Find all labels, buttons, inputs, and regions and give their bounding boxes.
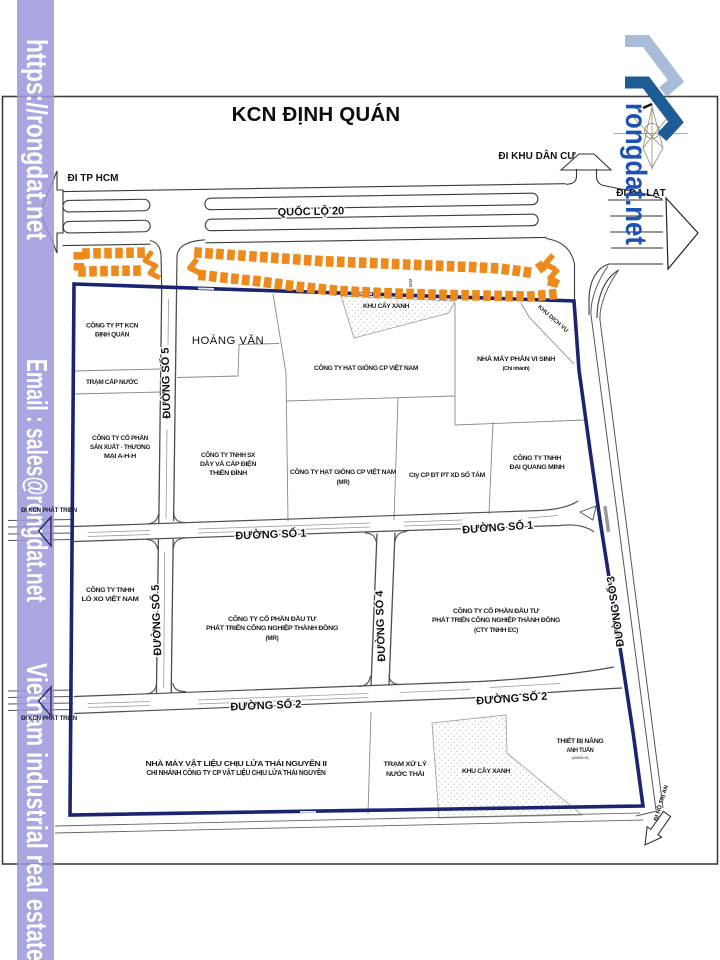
svg-text:QUỐC LỘ 20: QUỐC LỘ 20: [277, 203, 344, 218]
svg-text:LÒ XO VIỆT NAM: LÒ XO VIỆT NAM: [82, 594, 139, 603]
svg-text:CÔNG TY TNHH: CÔNG TY TNHH: [513, 453, 562, 462]
svg-text:(43.992 m²): (43.992 m²): [572, 756, 589, 760]
svg-text:(Chi nhánh): (Chi nhánh): [503, 366, 530, 372]
svg-text:NHÀ MÁY PHÂN VI SINH: NHÀ MÁY PHÂN VI SINH: [477, 354, 556, 363]
svg-text:(CTY TNHH EC): (CTY TNHH EC): [474, 627, 518, 634]
svg-text:ĐI KCN PHÁT TRIỂN: ĐI KCN PHÁT TRIỂN: [21, 507, 77, 514]
svg-text:KHU CÂY XANH: KHU CÂY XANH: [363, 303, 409, 310]
svg-text:ĐI TP HCM: ĐI TP HCM: [68, 173, 119, 184]
svg-text:(MR): (MR): [266, 635, 279, 642]
svg-text:rongdat.net: rongdat.net: [619, 103, 652, 245]
svg-text:DÂY VÀ CÁP ĐIỆN: DÂY VÀ CÁP ĐIỆN: [200, 459, 257, 468]
svg-text:CÔNG TY TNHH: CÔNG TY TNHH: [86, 585, 135, 594]
svg-text:NƯỚC THẢI: NƯỚC THẢI: [386, 769, 425, 778]
svg-text:NHÀ MÁY VẬT LIỆU CHỊU LỬA THÁI: NHÀ MÁY VẬT LIỆU CHỊU LỬA THÁI NGUYÊN II: [146, 759, 327, 768]
svg-text:THIÊN ĐÌNH: THIÊN ĐÌNH: [209, 468, 248, 477]
svg-text:TRẠM XỬ LÝ: TRẠM XỬ LÝ: [384, 759, 428, 768]
svg-text:KCN ĐỊNH QUÁN: KCN ĐỊNH QUÁN: [232, 103, 401, 126]
svg-text:CÔNG TY PT KCN: CÔNG TY PT KCN: [86, 321, 139, 330]
svg-text:MẠI A-H-H: MẠI A-H-H: [104, 453, 137, 460]
svg-text:https://rongdat.net: https://rongdat.net: [20, 39, 52, 240]
svg-text:ĐẠI QUANG MINH: ĐẠI QUANG MINH: [510, 464, 566, 471]
svg-text:CHI NHÁNH CÔNG TY CP VẬT LIỆU: CHI NHÁNH CÔNG TY CP VẬT LIỆU CHỊU LỬA T…: [147, 768, 326, 777]
svg-text:ĐỊNH QUÁN: ĐỊNH QUÁN: [95, 330, 130, 339]
svg-text:ĐI KCN PHÁT TRIỂN: ĐI KCN PHÁT TRIỂN: [21, 715, 77, 722]
svg-text:Vietnam industrial real estate: Vietnam industrial real estate: [20, 663, 52, 960]
svg-text:KHU CÂY XANH: KHU CÂY XANH: [462, 766, 511, 775]
svg-text:CÔNG TY TNHH SX: CÔNG TY TNHH SX: [201, 450, 256, 459]
svg-text:ĐI KHU DÂN CƯ: ĐI KHU DÂN CƯ: [498, 149, 576, 162]
svg-text:Email : sales@rongdat.net: Email : sales@rongdat.net: [20, 359, 52, 602]
svg-text:68M: 68M: [408, 278, 413, 287]
svg-text:(MR): (MR): [337, 479, 350, 486]
svg-text:HOÀNG VĂN: HOÀNG VĂN: [192, 334, 264, 347]
